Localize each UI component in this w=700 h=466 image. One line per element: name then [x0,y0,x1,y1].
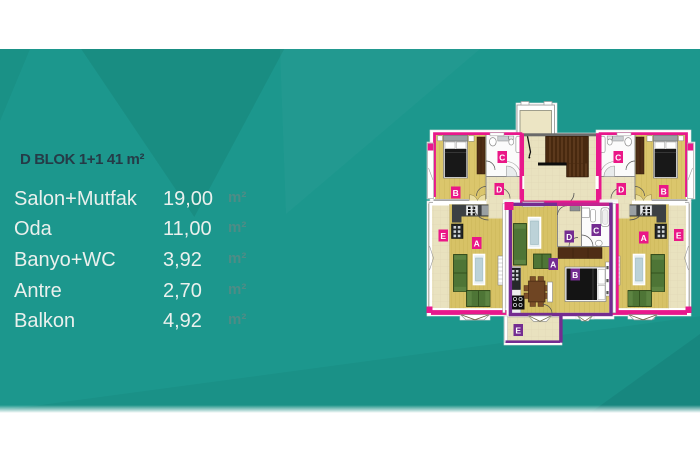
svg-text:E: E [515,325,521,335]
svg-text:C: C [615,152,621,162]
svg-text:D: D [496,184,502,194]
svg-text:E: E [676,230,682,240]
svg-text:A: A [641,233,647,243]
svg-text:D: D [566,232,572,242]
svg-text:C: C [499,152,505,162]
svg-text:A: A [550,259,556,269]
svg-text:E: E [440,231,446,241]
svg-text:C: C [593,225,599,235]
svg-text:B: B [572,270,578,280]
svg-text:B: B [661,186,667,196]
svg-text:B: B [453,188,459,198]
svg-text:A: A [474,238,480,248]
svg-text:D: D [618,184,624,194]
